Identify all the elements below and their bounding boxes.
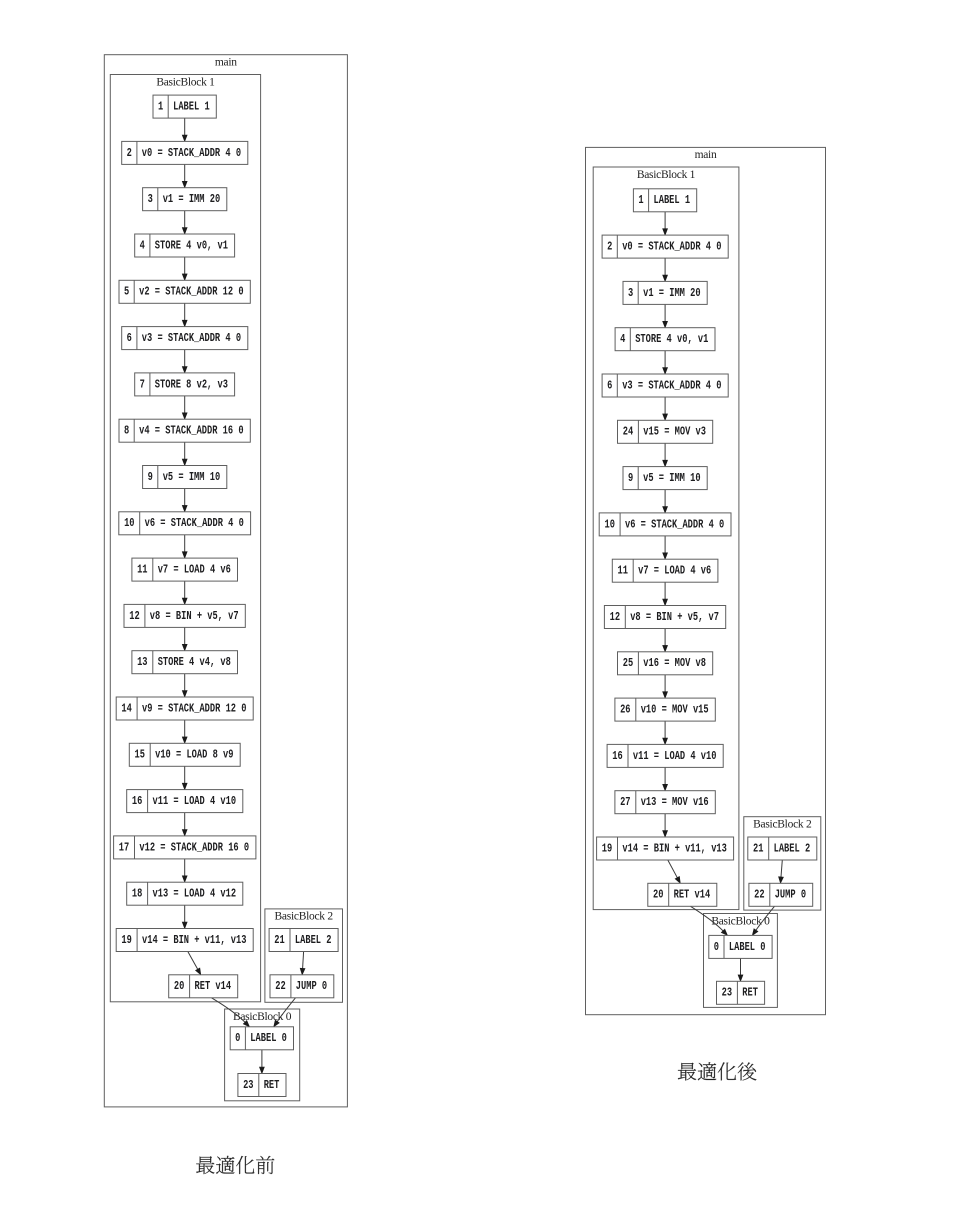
svg-text:1: 1 — [158, 100, 163, 114]
svg-text:2: 2 — [607, 240, 612, 254]
svg-text:12: 12 — [610, 611, 620, 625]
svg-text:v6 = STACK_ADDR 4 0: v6 = STACK_ADDR 4 0 — [625, 518, 724, 532]
svg-text:v13 = MOV v16: v13 = MOV v16 — [641, 796, 709, 810]
svg-text:19: 19 — [121, 934, 131, 948]
svg-text:0: 0 — [235, 1032, 240, 1046]
svg-text:1: 1 — [638, 194, 643, 208]
svg-text:BasicBlock 1: BasicBlock 1 — [156, 76, 215, 88]
svg-text:9: 9 — [628, 472, 633, 486]
svg-text:BasicBlock 2: BasicBlock 2 — [753, 819, 812, 831]
svg-text:v5 = IMM 10: v5 = IMM 10 — [163, 471, 220, 485]
svg-text:11: 11 — [137, 563, 147, 577]
svg-text:6: 6 — [127, 332, 132, 346]
svg-text:RET: RET — [264, 1079, 280, 1093]
svg-text:STORE 4 v0, v1: STORE 4 v0, v1 — [155, 239, 228, 253]
svg-text:23: 23 — [243, 1079, 253, 1093]
svg-text:6: 6 — [607, 379, 612, 393]
svg-text:5: 5 — [124, 285, 129, 299]
svg-text:v15 = MOV v3: v15 = MOV v3 — [643, 425, 706, 439]
svg-text:STORE 8 v2, v3: STORE 8 v2, v3 — [155, 378, 228, 392]
svg-text:RET v14: RET v14 — [195, 980, 232, 994]
svg-text:v5 = IMM 10: v5 = IMM 10 — [643, 472, 700, 486]
svg-text:v8 = BIN + v5, v7: v8 = BIN + v5, v7 — [630, 611, 719, 625]
svg-text:22: 22 — [754, 888, 764, 902]
svg-text:2: 2 — [127, 147, 132, 161]
svg-text:24: 24 — [623, 425, 634, 439]
svg-text:RET: RET — [742, 986, 758, 1000]
svg-text:9: 9 — [148, 471, 153, 485]
svg-text:7: 7 — [140, 378, 145, 392]
svg-text:16: 16 — [132, 795, 142, 809]
svg-text:BasicBlock 0: BasicBlock 0 — [711, 915, 770, 927]
svg-text:v10 = LOAD 8 v9: v10 = LOAD 8 v9 — [155, 748, 233, 762]
svg-text:27: 27 — [620, 796, 630, 810]
svg-text:STORE 4 v4, v8: STORE 4 v4, v8 — [158, 656, 231, 670]
svg-text:25: 25 — [623, 657, 633, 671]
svg-text:21: 21 — [274, 934, 284, 948]
svg-text:v1 = IMM 20: v1 = IMM 20 — [643, 287, 700, 301]
svg-text:v11 = LOAD 4 v10: v11 = LOAD 4 v10 — [633, 750, 717, 764]
svg-text:v7 = LOAD 4 v6: v7 = LOAD 4 v6 — [638, 564, 711, 578]
svg-text:LABEL 1: LABEL 1 — [654, 194, 691, 208]
svg-text:RET v14: RET v14 — [674, 888, 711, 902]
svg-text:main: main — [215, 57, 237, 69]
svg-text:v2 = STACK_ADDR 12 0: v2 = STACK_ADDR 12 0 — [139, 285, 243, 299]
svg-text:v14 = BIN + v11, v13: v14 = BIN + v11, v13 — [142, 934, 246, 948]
svg-text:v6 = STACK_ADDR 4 0: v6 = STACK_ADDR 4 0 — [145, 517, 244, 531]
svg-text:main: main — [695, 149, 717, 161]
svg-text:v4 = STACK_ADDR 16 0: v4 = STACK_ADDR 16 0 — [139, 424, 243, 438]
svg-text:v12 = STACK_ADDR 16 0: v12 = STACK_ADDR 16 0 — [139, 841, 249, 855]
svg-text:LABEL 2: LABEL 2 — [774, 842, 811, 856]
svg-text:19: 19 — [602, 842, 612, 856]
svg-text:4: 4 — [620, 333, 626, 347]
svg-text:22: 22 — [275, 980, 285, 994]
svg-text:BasicBlock 1: BasicBlock 1 — [637, 169, 696, 181]
svg-text:16: 16 — [612, 750, 622, 764]
svg-text:LABEL 0: LABEL 0 — [729, 941, 766, 955]
svg-text:STORE 4 v0, v1: STORE 4 v0, v1 — [635, 333, 708, 347]
svg-text:v0 = STACK_ADDR 4 0: v0 = STACK_ADDR 4 0 — [142, 147, 241, 161]
svg-text:v7 = LOAD 4 v6: v7 = LOAD 4 v6 — [158, 563, 231, 577]
svg-text:0: 0 — [714, 941, 719, 955]
svg-text:10: 10 — [604, 518, 614, 532]
svg-text:LABEL 0: LABEL 0 — [250, 1032, 287, 1046]
svg-text:v9 = STACK_ADDR 12 0: v9 = STACK_ADDR 12 0 — [142, 702, 246, 716]
svg-text:v11 = LOAD 4 v10: v11 = LOAD 4 v10 — [153, 795, 237, 809]
svg-text:v8 = BIN + v5, v7: v8 = BIN + v5, v7 — [150, 610, 239, 624]
svg-text:JUMP 0: JUMP 0 — [296, 980, 327, 994]
svg-text:20: 20 — [653, 888, 663, 902]
svg-text:v16 = MOV v8: v16 = MOV v8 — [643, 657, 706, 671]
svg-text:15: 15 — [134, 748, 144, 762]
svg-text:v0 = STACK_ADDR 4 0: v0 = STACK_ADDR 4 0 — [622, 240, 721, 254]
svg-text:v3 = STACK_ADDR 4 0: v3 = STACK_ADDR 4 0 — [622, 379, 721, 393]
svg-text:10: 10 — [124, 517, 134, 531]
svg-text:BasicBlock 2: BasicBlock 2 — [275, 911, 334, 923]
svg-text:3: 3 — [628, 287, 633, 301]
svg-text:JUMP 0: JUMP 0 — [775, 888, 806, 902]
svg-text:11: 11 — [617, 564, 627, 578]
svg-text:LABEL 2: LABEL 2 — [295, 934, 332, 948]
svg-text:17: 17 — [119, 841, 129, 855]
svg-text:BasicBlock 0: BasicBlock 0 — [233, 1011, 292, 1023]
svg-text:3: 3 — [148, 193, 153, 207]
svg-text:18: 18 — [132, 887, 142, 901]
svg-text:8: 8 — [124, 424, 129, 438]
svg-text:4: 4 — [140, 239, 146, 253]
svg-text:26: 26 — [620, 703, 630, 717]
svg-text:v13 = LOAD 4 v12: v13 = LOAD 4 v12 — [153, 887, 237, 901]
svg-text:12: 12 — [129, 610, 139, 624]
svg-text:14: 14 — [121, 702, 132, 716]
svg-text:23: 23 — [722, 986, 732, 1000]
svg-text:13: 13 — [137, 656, 147, 670]
svg-text:v1 = IMM 20: v1 = IMM 20 — [163, 193, 220, 207]
svg-text:v14 = BIN + v11, v13: v14 = BIN + v11, v13 — [622, 842, 726, 856]
svg-text:v10 = MOV v15: v10 = MOV v15 — [641, 703, 709, 717]
svg-text:LABEL 1: LABEL 1 — [173, 100, 210, 114]
svg-text:20: 20 — [174, 980, 184, 994]
svg-text:v3 = STACK_ADDR 4 0: v3 = STACK_ADDR 4 0 — [142, 332, 241, 346]
svg-text:21: 21 — [753, 842, 763, 856]
